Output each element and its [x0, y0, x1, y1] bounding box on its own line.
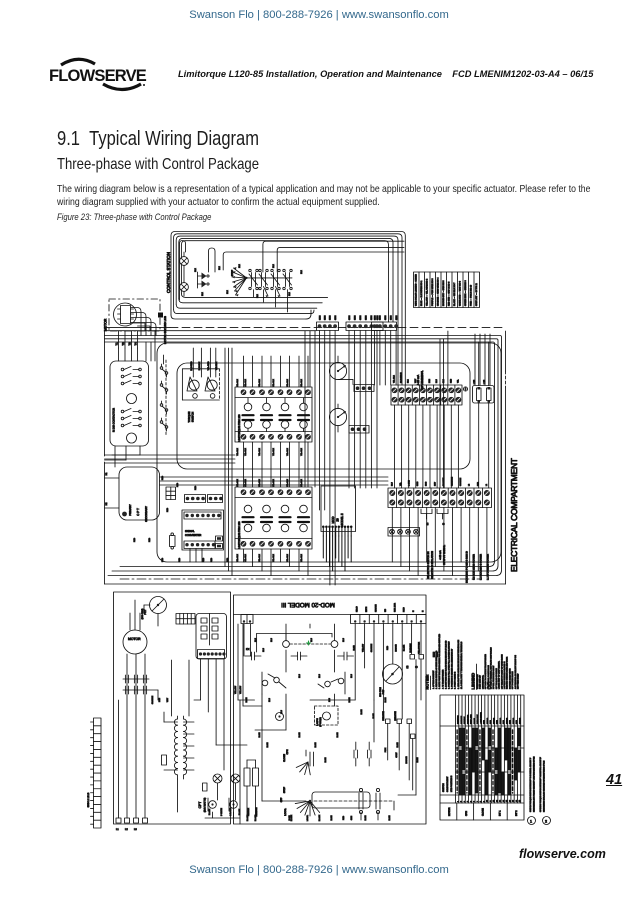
svg-text:BLUE: BLUE: [388, 815, 391, 821]
svg-text:MECHANISM SHR ALSO SECURED SPR: MECHANISM SHR ALSO SECURED SPRINGRYTKING…: [543, 760, 546, 812]
svg-text:H: H: [421, 611, 424, 613]
svg-text:16: 16: [505, 800, 508, 802]
svg-text:RED: RED: [449, 378, 452, 383]
svg-text:BLK: BLK: [300, 269, 303, 273]
svg-text:L3: L3: [134, 828, 137, 831]
svg-text:WIRE COLOR LEGEND · CODES: WIRE COLOR LEGEND · CODES: [415, 274, 418, 306]
svg-text:YEL-BLK: YEL-BLK: [300, 553, 303, 562]
svg-text:BROWN: BROWN: [374, 604, 377, 612]
svg-text:MTD POSITION S: MTD POSITION S: [450, 775, 453, 792]
svg-text:R DIR CONTACTOR: R DIR CONTACTOR: [113, 408, 116, 432]
svg-text:YEL-BLK: YEL-BLK: [272, 478, 275, 487]
svg-text:SPRNG: SPRNG: [518, 717, 521, 724]
svg-text:SPRNG: SPRNG: [512, 717, 515, 724]
svg-text:INT 2: INT 2: [515, 810, 518, 816]
svg-text:RED: RED: [166, 507, 169, 512]
svg-text:YEL-BLK: YEL-BLK: [258, 378, 261, 387]
svg-text:BLUE: BLUE: [324, 757, 327, 763]
svg-text:YEL-BLK: YEL-BLK: [272, 447, 275, 456]
svg-text:SPRNG: SPRNG: [499, 717, 502, 724]
svg-text:KX: KX: [246, 648, 250, 651]
svg-text:YEL-BLK: YEL-BLK: [236, 478, 239, 487]
svg-text:LARGE JUMP OF LOOP REINSTL: LARGE JUMP OF LOOP REINSTL: [498, 661, 501, 689]
svg-text:GRY: GRY: [433, 481, 436, 486]
svg-text:BLUE: BLUE: [314, 742, 317, 748]
svg-text:9: 9: [482, 801, 485, 802]
svg-text:BLUE ··· BLK WIRES NO 1: BLUE ··· BLK WIRES NO 1: [420, 280, 423, 306]
svg-text:YEL-BLK: YEL-BLK: [244, 378, 247, 387]
svg-text:YELLOW: YELLOW: [361, 644, 364, 652]
svg-text:YEL-BLK: YEL-BLK: [393, 374, 396, 383]
svg-text:MECHANISM ANTI FRAUD SECURITY: MECHANISM ANTI FRAUD SECURITY JUMPING LI…: [533, 756, 536, 812]
svg-text:H1: H1: [105, 472, 108, 476]
svg-text:GRN: GRN: [350, 815, 353, 820]
svg-text:BLU-RED: BLU-RED: [190, 361, 193, 371]
svg-text:OPN: OPN: [286, 749, 289, 754]
svg-text:PNID LIGHT: PNID LIGHT: [476, 715, 479, 724]
svg-text:L2 INCE MING POWER: L2 INCE MING POWER: [473, 554, 476, 580]
svg-text:BLK: BLK: [201, 291, 204, 295]
svg-text:OFF: OFF: [280, 797, 283, 802]
svg-text:BLK: BLK: [226, 289, 229, 293]
svg-text:YEL-BLK: YEL-BLK: [286, 447, 289, 456]
svg-text:GRN: GRN: [324, 315, 327, 320]
svg-text:L OPTION NORMALS CLOSED N: L OPTION NORMALS CLOSED N: [503, 661, 506, 689]
svg-text:GRN: GRN: [390, 315, 393, 320]
svg-text:2: 2: [545, 820, 547, 824]
svg-text:RED: RED: [178, 557, 181, 562]
svg-text:2: 2: [460, 801, 463, 802]
svg-text:L1: L1: [116, 828, 119, 831]
svg-text:OPT POSTIN BRACE: OPT POSTIN BRACE: [511, 671, 514, 689]
svg-text:BLK: BLK: [288, 291, 291, 295]
svg-text:YEL-BLK: YEL-BLK: [236, 378, 239, 387]
svg-text:MOTOR: MOTOR: [448, 807, 451, 816]
svg-text:YEL-BLK: YEL-BLK: [286, 378, 289, 387]
svg-text:OPN/BLK: OPN/BLK: [463, 716, 466, 724]
svg-text:(360 OHM): (360 OHM): [141, 608, 144, 619]
svg-text:CLOSE: CLOSE: [473, 717, 476, 724]
svg-text:SWITCH: SWITCH: [442, 783, 445, 792]
svg-text:YEL-BLK: YEL-BLK: [236, 553, 239, 562]
svg-text:BLU: BLU: [342, 638, 345, 642]
svg-text:STOP: STOP: [283, 786, 286, 793]
svg-text:S LED COM CAT: S LED COM CAT: [479, 674, 482, 689]
svg-text:T2: T2: [122, 342, 125, 346]
svg-text:WHT RTS: WHT RTS: [393, 603, 396, 613]
svg-text:BLUE: BLUE: [396, 742, 399, 748]
svg-text:SPRNG: SPRNG: [505, 717, 508, 724]
svg-text:GREEN BRN ··· GRN NO 9: GREEN BRN ··· GRN NO 9: [464, 280, 467, 306]
svg-text:B WHITE: B WHITE: [220, 807, 223, 816]
svg-text:COMPARTMENT: COMPARTMENT: [446, 776, 449, 792]
svg-text:WHITE RTD ··· WHT NO 8: WHITE RTD ··· WHT NO 8: [459, 280, 462, 306]
svg-text:MODEL II: MODEL II: [340, 513, 344, 526]
svg-text:YELLOW: YELLOW: [239, 686, 242, 694]
svg-text:T3: T3: [129, 342, 132, 346]
svg-text:RED: RED: [161, 557, 164, 562]
svg-text:BLK: BLK: [272, 263, 275, 267]
svg-text:YELLOW ··· YEL WIRE NO 2: YELLOW ··· YEL WIRE NO 2: [426, 278, 429, 306]
svg-text:YEL-BLK: YEL-BLK: [258, 553, 261, 562]
svg-text:INT 1: INT 1: [498, 810, 501, 816]
svg-text:YEL-BLK: YEL-BLK: [300, 378, 303, 387]
svg-text:SWITCH: SWITCH: [192, 412, 195, 422]
svg-text:BRN: BRN: [158, 697, 161, 702]
svg-text:H: H: [412, 611, 415, 613]
svg-text:SPRNG: SPRNG: [492, 717, 495, 724]
svg-text:BLK: BLK: [407, 379, 410, 383]
svg-text:BLU: BLU: [310, 638, 313, 642]
svg-text:RED STD ··· GRY N NO 6: RED STD ··· GRY N NO 6: [448, 281, 451, 306]
svg-text:4: 4: [466, 801, 469, 802]
svg-text:OPT W ALSO OF CHECK: OPT W ALSO OF CHECK: [495, 667, 498, 689]
svg-text:ELECTRO CHROM COMM AND WORK: ELECTRO CHROM COMM AND WORK: [506, 656, 509, 689]
svg-text:GREY ART ··· GY PN 11: GREY ART ··· GY PN 11: [475, 282, 478, 306]
svg-text:OPEN: OPEN: [355, 606, 358, 612]
svg-text:BLUE: BLUE: [330, 815, 333, 821]
svg-text:BLACK: BLACK: [254, 814, 257, 821]
svg-text:BROWN: BROWN: [395, 644, 398, 652]
svg-text:BLACK ··· WH BLK NO 7: BLACK ··· WH BLK NO 7: [453, 282, 456, 306]
svg-text:RED: RED: [202, 557, 205, 562]
svg-text:LEGEND: LEGEND: [471, 673, 476, 690]
svg-text:CLOSE: CLOSE: [482, 808, 485, 816]
svg-text:YEL-BLK: YEL-BLK: [236, 447, 239, 456]
svg-text:MOD: MOD: [331, 516, 335, 524]
svg-text:BLUE: BLUE: [258, 732, 261, 738]
svg-text:(dVA WATTS): (dVA WATTS): [204, 798, 207, 813]
svg-text:SWITCH TORQUE SWITCH INTERRUPT: SWITCH TORQUE SWITCH INTERRUPT S IN SERI…: [529, 757, 532, 812]
svg-text:SECONDARY: SECONDARY: [145, 506, 148, 522]
svg-text:POT: POT: [144, 609, 147, 615]
svg-text:BLUE: BLUE: [360, 709, 363, 715]
svg-text:BLACK: BLACK: [238, 808, 241, 815]
svg-text:BRN: BRN: [428, 378, 431, 383]
svg-text:RED: RED: [342, 815, 345, 820]
svg-text:L OWT SPRNG: L OWT SPRNG: [479, 712, 482, 724]
svg-text:RED: RED: [386, 645, 389, 650]
svg-text:10: 10: [486, 800, 489, 802]
svg-text:L1: L1: [485, 484, 488, 486]
svg-text:20: 20: [518, 800, 521, 802]
svg-text:NOTES:: NOTES:: [425, 674, 430, 689]
svg-text:3. SAFE POINT ISOLATION CHECK: 3. SAFE POINT ISOLATION CHECK FOR HIGH A…: [438, 633, 441, 689]
svg-text:ROTATION: ROTATION: [457, 715, 460, 724]
svg-text:ONG: ONG: [416, 481, 419, 486]
svg-text:LIMITORQUE ITEM 100: LIMITORQUE ITEM 100: [238, 521, 241, 549]
svg-text:YEL-BLK: YEL-BLK: [258, 478, 261, 487]
svg-text:L1F: L1F: [483, 379, 486, 384]
svg-text:BLUE: BLUE: [298, 732, 301, 738]
svg-text:BLACK: BLACK: [246, 814, 249, 821]
svg-text:BLUE: BLUE: [336, 732, 339, 738]
svg-text:RED: RED: [148, 537, 151, 542]
svg-text:LOCAL: LOCAL: [284, 808, 287, 816]
svg-text:10. A UNCL PART T THROUGH SEVE: 10. A UNCL PART T THROUGH SEVERAL TERMIN…: [460, 641, 463, 689]
svg-text:500 OHM: 500 OHM: [379, 687, 382, 697]
svg-text:ORANGE ··· ONG WIRE NO 4: ORANGE ··· ONG WIRE NO 4: [437, 277, 440, 306]
svg-text:19: 19: [515, 800, 518, 802]
svg-text:PINK: PINK: [384, 747, 387, 752]
svg-text:YEL: YEL: [456, 379, 459, 383]
svg-text:(IF REQD): (IF REQD): [319, 717, 322, 727]
svg-text:BLUE: BLUE: [266, 742, 269, 748]
svg-text:WHT: WHT: [166, 697, 169, 702]
svg-text:6. POSITION S FULL OPEN FULL: 6. POSITION S FULL OPEN FULL CLOSED BLUE…: [448, 640, 451, 689]
svg-text:7: 7: [476, 801, 479, 802]
svg-text:CONVERTER: CONVERTER: [185, 534, 201, 537]
svg-text:5: 5: [469, 801, 472, 802]
svg-text:YEL-RED: YEL-RED: [207, 361, 210, 371]
svg-text:L BLACK: L BLACK: [229, 807, 232, 815]
svg-text:GRN: GRN: [353, 315, 356, 320]
svg-text:MOTOR: MOTOR: [128, 637, 141, 641]
svg-text:11: 11: [489, 800, 492, 802]
svg-text:CONTACTS: CONTACTS: [466, 714, 469, 724]
svg-text:OPN: OPN: [465, 811, 468, 816]
svg-text:PALY L OPN: PALY L OPN: [470, 714, 473, 724]
svg-text:BLU: BLU: [268, 698, 271, 702]
svg-text:SIGNAL: SIGNAL: [185, 530, 195, 533]
svg-text:MOTOR GROUND LUG: MOTOR GROUND LUG: [164, 316, 167, 344]
svg-text:REMOTE IN ISOLATION: REMOTE IN ISOLATION: [431, 551, 434, 579]
svg-text:GRN: GRN: [379, 315, 382, 320]
svg-text:MOD-20 MODEL III: MOD-20 MODEL III: [281, 601, 335, 608]
svg-text:BLU: BLU: [318, 674, 321, 678]
svg-text:(-): (-): [415, 666, 418, 669]
svg-text:LGT SELECT BY CONT OF OPEN CLO: LGT SELECT BY CONT OF OPEN CLOSE: [500, 654, 503, 689]
svg-text:MOTOR: MOTOR: [104, 318, 108, 331]
svg-text:L2F: L2F: [473, 379, 476, 384]
svg-text:C P T: C P T: [136, 508, 140, 516]
svg-text:PINK ··· PNK N NO 10: PINK ··· PNK N NO 10: [470, 284, 473, 306]
svg-text:GND L1 L2 L3: GND L1 L2 L3: [87, 792, 90, 807]
svg-text:13: 13: [495, 800, 498, 802]
svg-text:RED: RED: [133, 537, 136, 542]
svg-text:YELLOW-BLK: YELLOW-BLK: [417, 641, 420, 654]
svg-text:BROWN GRY ·· GRN NO 5: BROWN GRY ·· GRN NO 5: [442, 280, 445, 306]
svg-text:GRC: GRC: [425, 481, 428, 486]
svg-text:5. 2 BUTTONS NOT IN A 3W 2/CA: 5. 2 BUTTONS NOT IN A 3W 2/CAN BE OUT AT…: [444, 640, 447, 689]
svg-text:L2: L2: [468, 484, 471, 486]
svg-text:OPT AND 704 POSITION TRANSFORM: OPT AND 704 POSITION TRANSFORMER: [484, 654, 487, 689]
svg-text:1: 1: [530, 820, 532, 824]
svg-text:T4: T4: [135, 342, 138, 346]
svg-text:YEL-BLK: YEL-BLK: [300, 447, 303, 456]
svg-text:BLK: BLK: [194, 267, 197, 271]
svg-text:SELECTOR SWITCH IN: SELECTOR SWITCH IN: [427, 551, 430, 578]
svg-text:RED: RED: [226, 557, 229, 562]
svg-text:T1: T1: [116, 342, 119, 346]
svg-text:CLOSE: CLOSE: [283, 754, 286, 762]
svg-text:BLUE: BLUE: [364, 815, 367, 821]
svg-text:N PULL PRODUCING LIGHT: N PULL PRODUCING LIGHT: [492, 665, 495, 689]
svg-text:PURPLE ··· POR WIRE NO 3: PURPLE ··· POR WIRE NO 3: [431, 278, 434, 306]
svg-text:RED: RED: [161, 475, 164, 480]
svg-text:ORANGE: ORANGE: [370, 643, 373, 652]
svg-text:17: 17: [508, 800, 511, 802]
svg-text:RED/BLK: RED/BLK: [247, 807, 250, 816]
svg-text:INPUT SIGNAL: INPUT SIGNAL: [420, 370, 424, 390]
svg-text:CPT: CPT: [198, 802, 202, 809]
svg-text:GRN: GRN: [329, 315, 332, 320]
svg-text:BLUE: BLUE: [372, 713, 375, 719]
svg-text:ORANGE: ORANGE: [151, 695, 154, 704]
svg-text:BLACK: BLACK: [208, 808, 211, 815]
svg-text:BLU: BLU: [262, 648, 265, 652]
svg-text:BLACK: BLACK: [402, 644, 405, 651]
svg-text:BLACK: BLACK: [318, 814, 321, 821]
svg-text:GRN: GRN: [384, 315, 387, 320]
svg-text:GRN: GRN: [334, 315, 337, 320]
svg-text:GREEN GRD CAT: GREEN GRD CAT: [476, 673, 479, 689]
svg-text:BLU: BLU: [435, 379, 438, 383]
svg-text:BLUE: BLUE: [384, 697, 387, 703]
svg-text:OPERATE: OPERATE: [460, 715, 463, 724]
svg-text:BROWN: BROWN: [405, 756, 408, 764]
svg-text:YEL-BLK: YEL-BLK: [215, 361, 218, 370]
svg-text:NOT TERM SHELT: NOT TERM SHELT: [517, 673, 520, 689]
svg-text:LIGHTNING BOL: LIGHTNING BOL: [481, 675, 484, 689]
svg-text:BLK: BLK: [238, 263, 241, 267]
svg-text:8. POINT S HAND B: 8. POINT S HAND B: [454, 671, 457, 689]
svg-text:N OTHER NORM WIDTH: N OTHER NORM WIDTH: [508, 668, 511, 689]
svg-text:YEL-BLK: YEL-BLK: [272, 378, 275, 387]
svg-text:6: 6: [473, 801, 476, 802]
svg-text:OUTPUT SIGNAL: OUTPUT SIGNAL: [443, 544, 446, 565]
svg-text:YEL-BLK: YEL-BLK: [272, 553, 275, 562]
svg-text:18: 18: [512, 800, 515, 802]
svg-text:OPENING TORQUE SWITCH INTERRUP: OPENING TORQUE SWITCH INTERRUPT SIGNETTA…: [539, 756, 542, 812]
svg-text:(+): (+): [406, 665, 409, 668]
svg-text:RED: RED: [210, 557, 213, 562]
svg-text:A N TERMINAL ON SELECT BRIGHT: A N TERMINAL ON SELECT BRIGHT CHI: [514, 655, 517, 689]
svg-text:H2: H2: [105, 502, 108, 506]
svg-text:PRIMARY: PRIMARY: [129, 504, 132, 516]
svg-text:9. LINE ADAPTER AN ILLUM BE D: 9. LINE ADAPTER AN ILLUM BE DRAWN TERMIN…: [457, 639, 460, 689]
svg-text:14: 14: [499, 800, 502, 802]
svg-text:CONTROL STATION: CONTROL STATION: [166, 252, 171, 293]
svg-text:GRN: GRN: [365, 315, 368, 320]
svg-text:INCOMING PO AIR G RGN D: INCOMING PO AIR G RGN D: [466, 551, 469, 583]
svg-text:7. POSITION IN HIGHER ON A IN: 7. POSITION IN HIGHER ON A INDICATOR BY: [451, 648, 454, 689]
svg-text:BLUE: BLUE: [348, 697, 351, 703]
svg-text:8: 8: [479, 801, 482, 802]
svg-text:ORANGE: ORANGE: [459, 477, 462, 486]
svg-text:LOCAL: LOCAL: [306, 815, 309, 821]
svg-text:BLU-GRN-N: BLU-GRN-N: [400, 372, 403, 383]
svg-text:LIMITORQUE ITEM 100: LIMITORQUE ITEM 100: [238, 414, 241, 442]
svg-text:YEL-BLK: YEL-BLK: [244, 447, 247, 456]
svg-text:BLK-BLK: BLK-BLK: [198, 361, 201, 370]
svg-text:YEL-BLK: YEL-BLK: [300, 478, 303, 487]
svg-text:L2: L2: [125, 828, 128, 831]
svg-text:YEL-BLK: YEL-BLK: [258, 447, 261, 456]
svg-text:COM: COM: [402, 607, 405, 612]
svg-text:1. OPTION CONDUIT: 1. OPTION CONDUIT: [432, 670, 435, 689]
svg-text:BLU: BLU: [270, 638, 273, 642]
svg-text:4. T1 TRANSFORMER: 4. T1 TRANSFORMER: [441, 669, 444, 689]
svg-text:BLUE: BLUE: [245, 697, 248, 703]
svg-text:YEL-BLK: YEL-BLK: [286, 478, 289, 487]
svg-text:BLUE: BLUE: [416, 757, 419, 763]
svg-text:ELECTRICAL COMPARTMENT: ELECTRICAL COMPARTMENT: [509, 458, 519, 572]
svg-text:4-20 mA: 4-20 mA: [439, 550, 442, 560]
svg-text:12: 12: [492, 800, 495, 802]
svg-text:BLU: BLU: [390, 482, 393, 486]
svg-text:BLU: BLU: [350, 674, 353, 678]
svg-text:GRN: GRN: [348, 315, 351, 320]
svg-text:20: 20: [336, 518, 340, 522]
svg-text:YEL-BLK: YEL-BLK: [244, 478, 247, 487]
svg-text:GRN: GRN: [359, 315, 362, 320]
svg-text:BLK: BLK: [256, 293, 259, 297]
svg-text:OR: OR: [383, 609, 386, 613]
svg-text:1: 1: [456, 801, 459, 802]
svg-text:YEL-BLK: YEL-BLK: [286, 553, 289, 562]
svg-text:SPRNG: SPRNG: [486, 717, 489, 724]
svg-text:15: 15: [502, 800, 505, 802]
svg-text:GRN: GRN: [395, 315, 398, 320]
svg-text:BLUE: BLUE: [288, 815, 291, 821]
svg-text:BLUE: BLUE: [365, 607, 368, 613]
svg-text:LAMPS: LAMPS: [316, 718, 319, 726]
svg-text:REMOTE: REMOTE: [394, 711, 397, 721]
svg-text:RED: RED: [194, 485, 197, 490]
svg-text:GRN: GRN: [318, 315, 321, 320]
svg-text:BLK: BLK: [218, 265, 221, 269]
svg-text:YELLOW: YELLOW: [234, 686, 237, 694]
svg-text:YEL-BLK: YEL-BLK: [244, 553, 247, 562]
svg-text:GRN: GRN: [370, 315, 373, 320]
svg-text:GREY: GREY: [395, 752, 398, 758]
svg-text:GRN: GRN: [373, 315, 376, 320]
svg-text:3: 3: [463, 801, 466, 802]
svg-text:L2 INCOMIN G POWER: L2 INCOMIN G POWER: [480, 554, 483, 580]
svg-text:BLU: BLU: [298, 674, 301, 678]
